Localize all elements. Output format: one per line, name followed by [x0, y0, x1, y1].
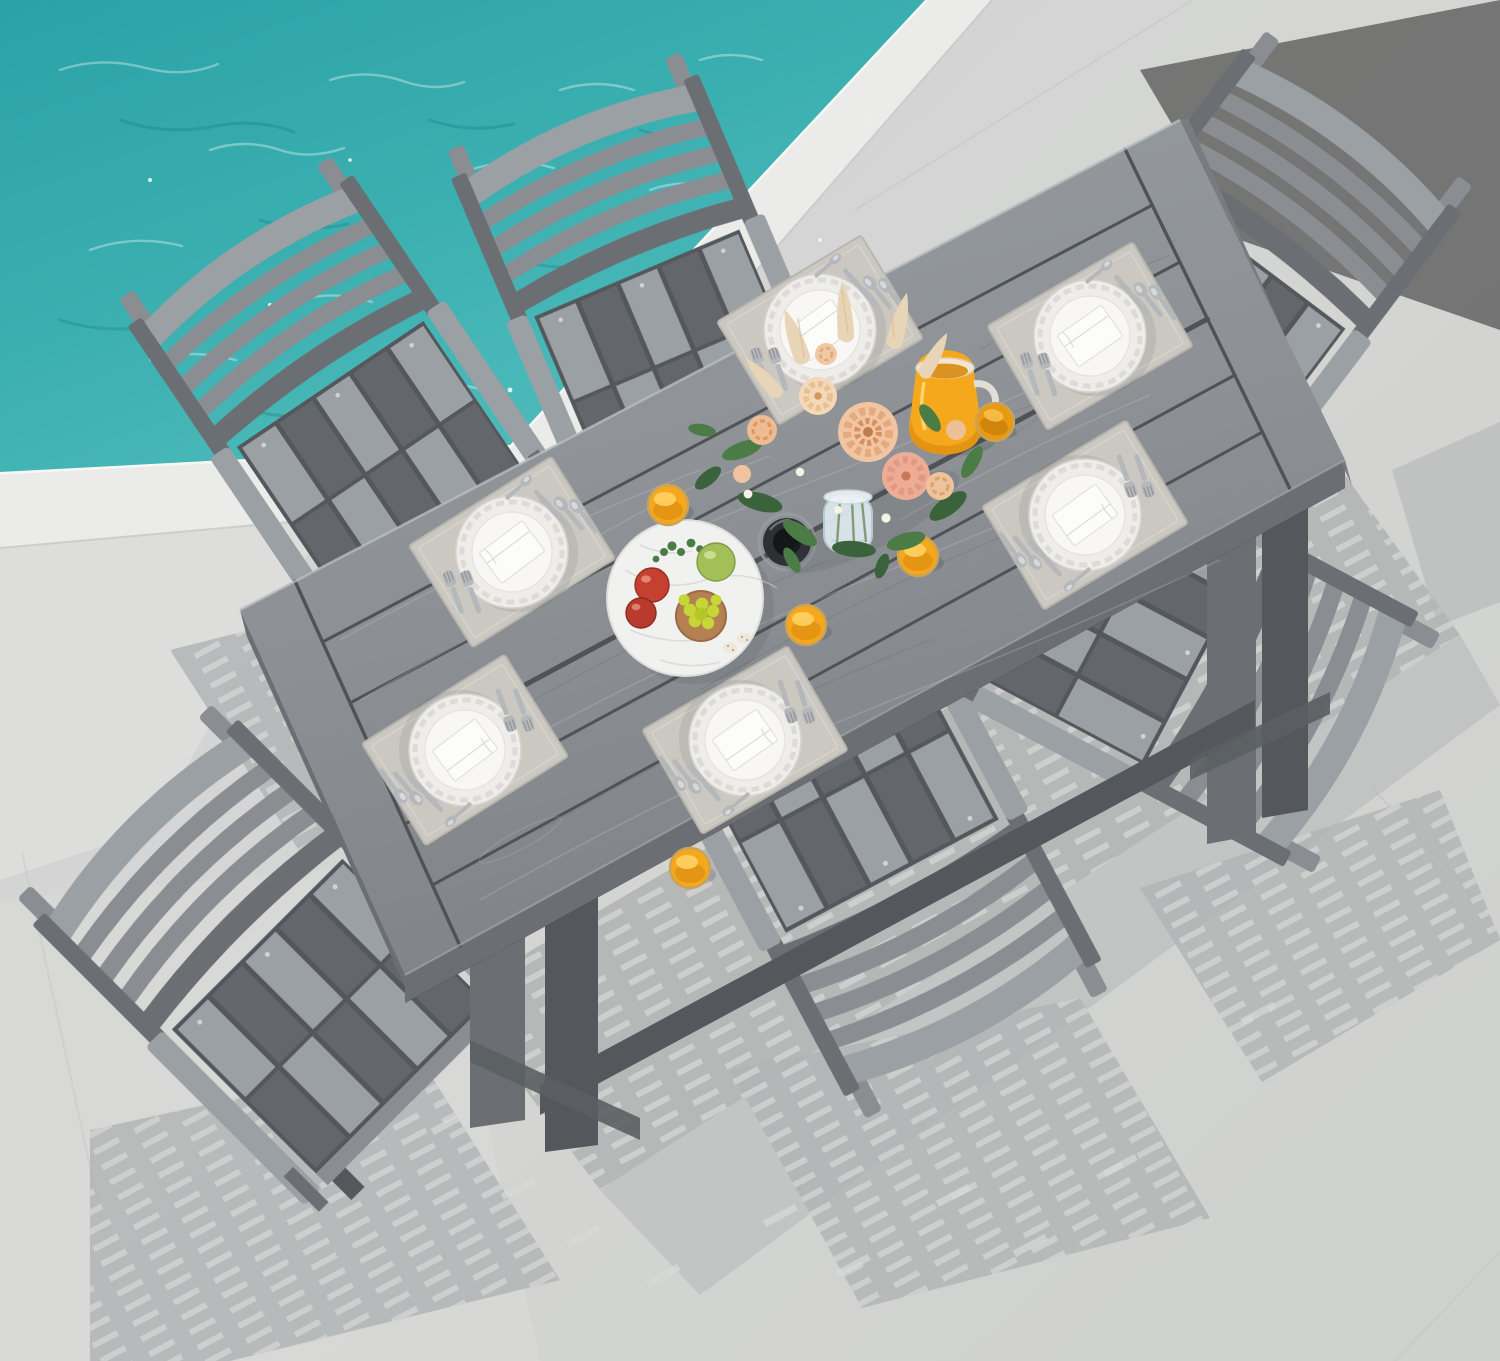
photo-outdoor-dining-set: Overhead product photo of a 7-piece gray… [0, 0, 1500, 1361]
green-apple [697, 543, 735, 581]
red-apple [626, 598, 656, 628]
red-apple [635, 568, 669, 602]
scene-canvas [0, 0, 1500, 1361]
